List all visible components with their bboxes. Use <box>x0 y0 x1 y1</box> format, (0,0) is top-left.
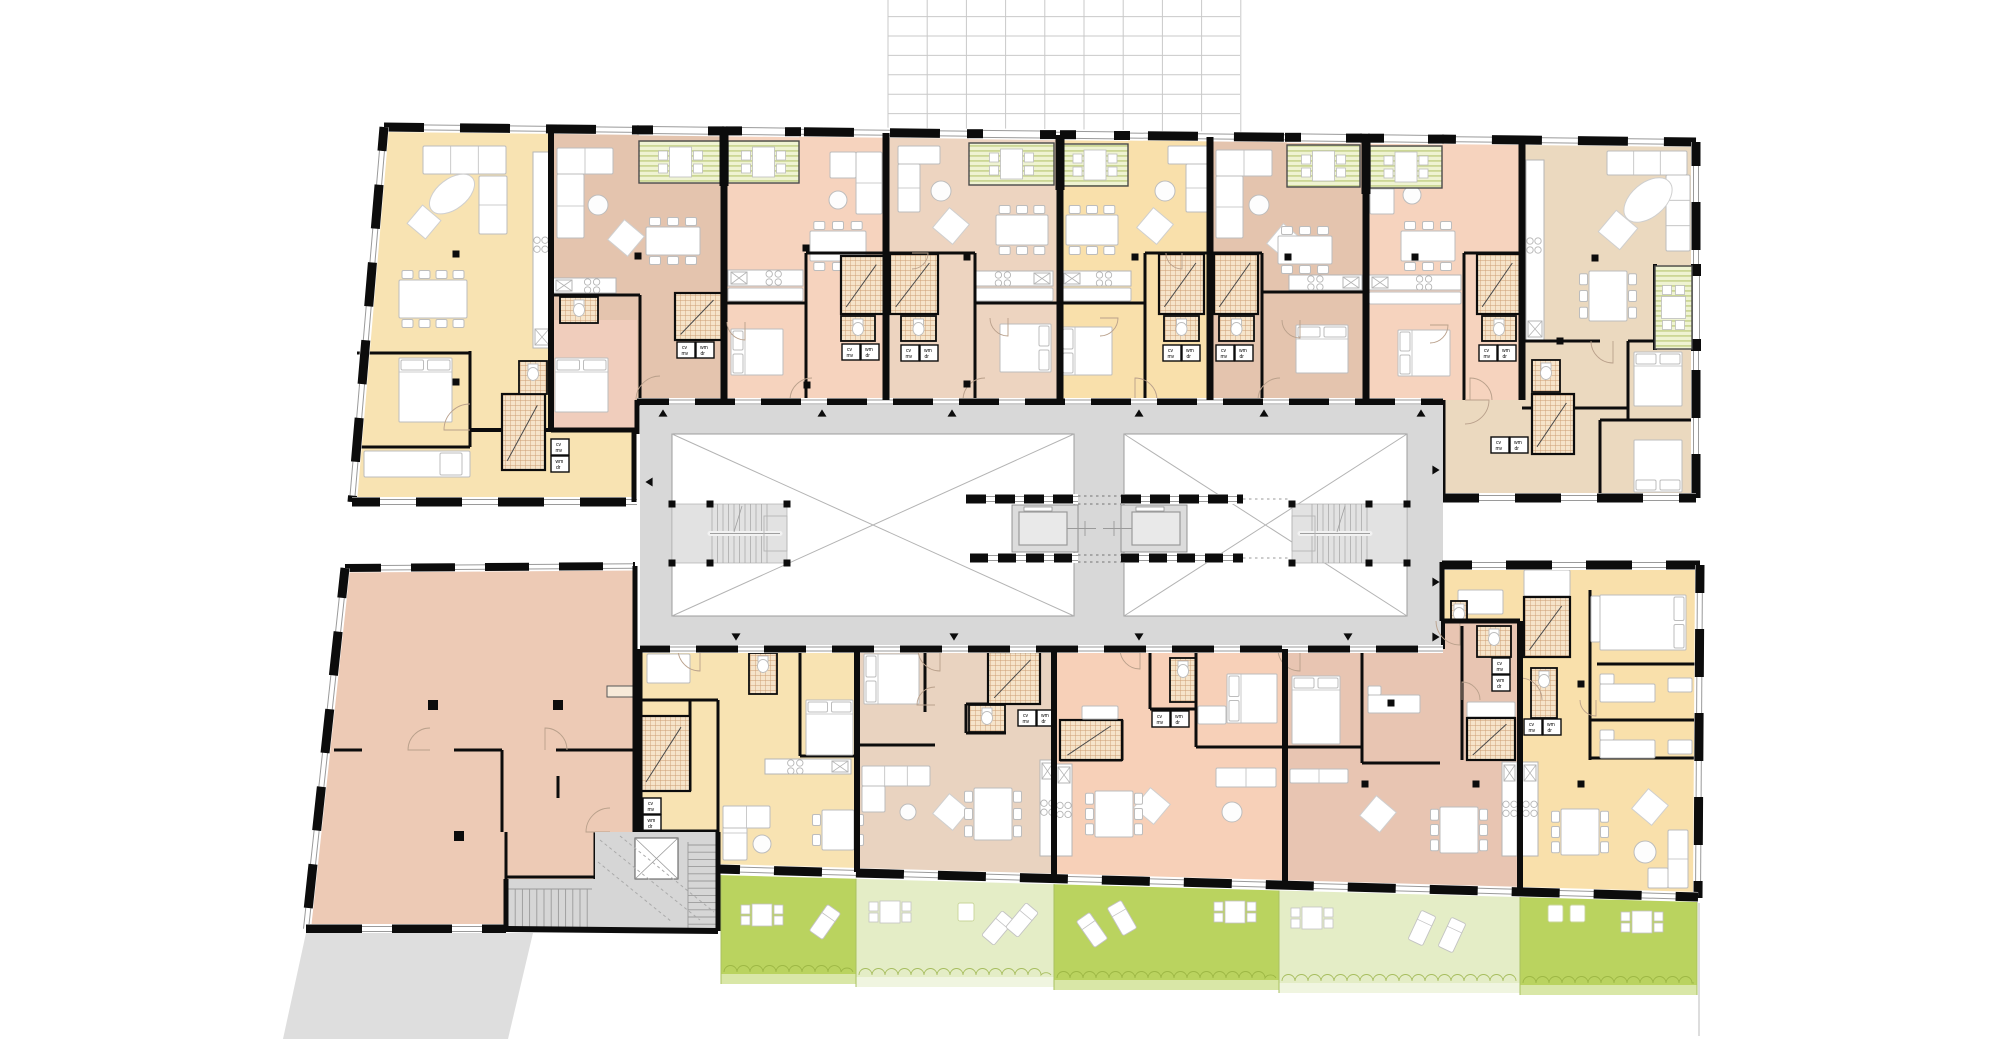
svg-text:dr: dr <box>1240 354 1245 360</box>
svg-text:mv: mv <box>1221 354 1228 360</box>
svg-text:dr: dr <box>1503 354 1508 360</box>
svg-text:mv: mv <box>1157 720 1164 726</box>
svg-text:dr: dr <box>1548 728 1553 734</box>
svg-text:dr: dr <box>701 351 706 357</box>
svg-text:dr: dr <box>648 824 653 830</box>
svg-text:mv: mv <box>556 448 563 454</box>
svg-text:dr: dr <box>1187 354 1192 360</box>
svg-text:dr: dr <box>1497 684 1502 690</box>
svg-text:mv: mv <box>847 353 854 359</box>
svg-text:mv: mv <box>1168 354 1175 360</box>
svg-text:mv: mv <box>1529 728 1536 734</box>
svg-text:dr: dr <box>1176 720 1181 726</box>
svg-text:mv: mv <box>1496 446 1503 452</box>
svg-text:dr: dr <box>1042 719 1047 725</box>
svg-text:dr: dr <box>1515 446 1520 452</box>
svg-text:mv: mv <box>1023 719 1030 725</box>
svg-text:dr: dr <box>866 353 871 359</box>
svg-text:mv: mv <box>1484 354 1491 360</box>
svg-text:mv: mv <box>682 351 689 357</box>
svg-text:dr: dr <box>925 354 930 360</box>
svg-text:mv: mv <box>906 354 913 360</box>
svg-text:mv: mv <box>648 807 655 813</box>
svg-text:dr: dr <box>556 465 561 471</box>
svg-text:mv: mv <box>1497 667 1504 673</box>
